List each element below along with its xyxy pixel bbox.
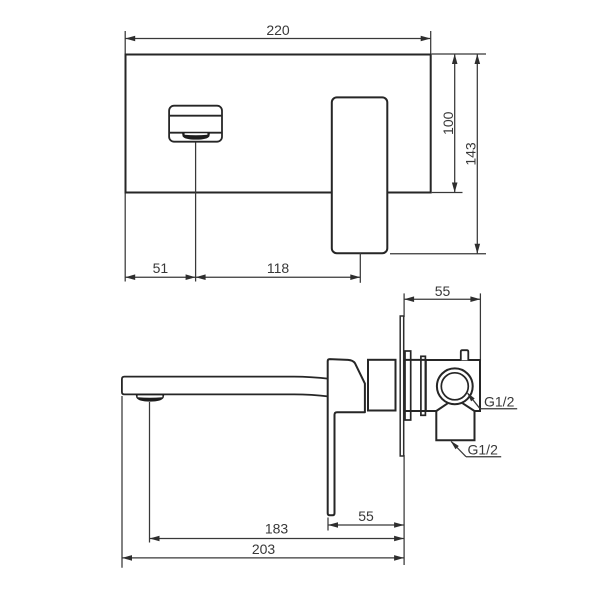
svg-text:183: 183 — [265, 521, 289, 537]
svg-text:100: 100 — [440, 111, 456, 135]
svg-text:55: 55 — [435, 283, 451, 299]
svg-text:143: 143 — [462, 142, 478, 166]
svg-text:G1/2: G1/2 — [484, 394, 515, 410]
svg-text:203: 203 — [252, 541, 276, 557]
svg-text:118: 118 — [267, 260, 290, 276]
svg-text:51: 51 — [153, 260, 169, 276]
svg-text:55: 55 — [358, 508, 374, 524]
svg-text:G1/2: G1/2 — [468, 442, 499, 458]
svg-text:220: 220 — [266, 22, 290, 38]
